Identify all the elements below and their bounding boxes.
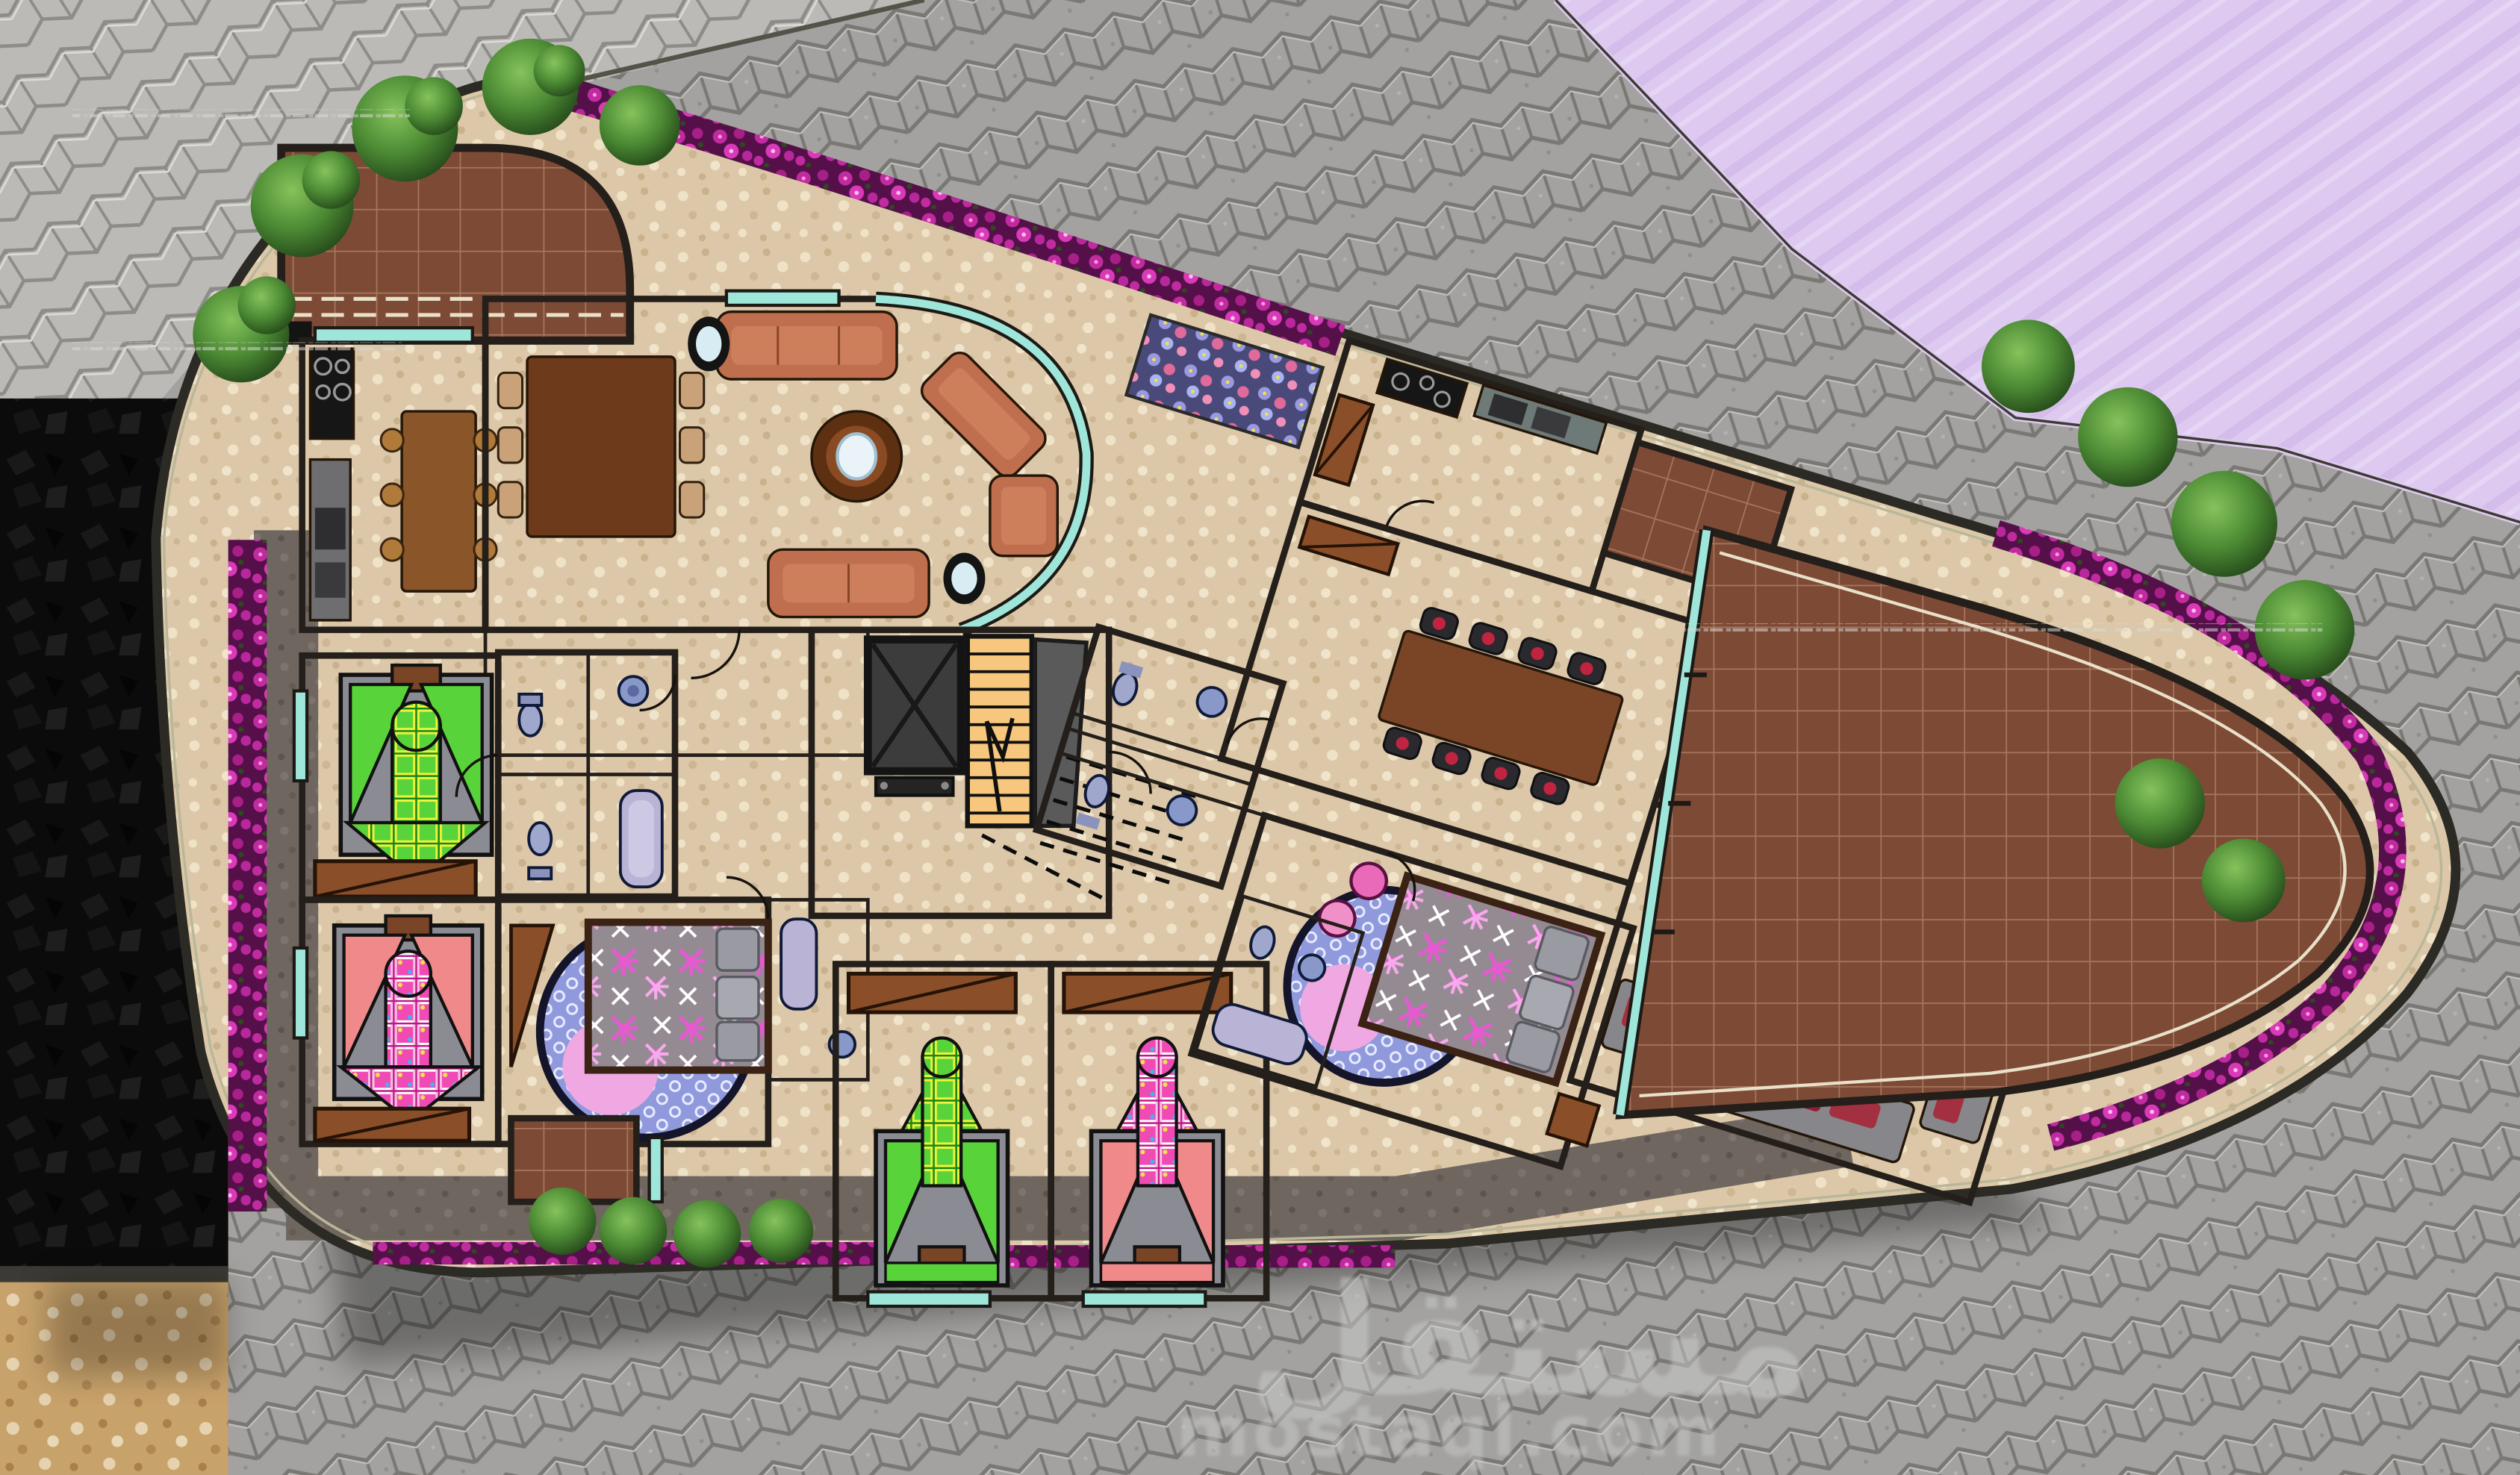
sofa-armchair <box>990 475 1057 556</box>
floor-plan-canvas: مستقل mostaql.com <box>0 0 2520 1475</box>
tree <box>2115 758 2206 849</box>
floor-plan-screenshot: مستقل mostaql.com <box>0 0 2520 1475</box>
living-window-top <box>727 291 839 305</box>
sofa-loveseat <box>768 549 929 617</box>
tree <box>2171 471 2277 577</box>
bathtub-2 <box>781 919 816 1009</box>
watermark-latin: mostaql.com <box>1176 1391 1723 1473</box>
bed-pink-single <box>335 916 482 1122</box>
watermark: مستقل mostaql.com <box>1176 1251 1812 1473</box>
bedroom1-window <box>294 691 307 782</box>
kitchen-sink-2 <box>315 562 346 597</box>
bedroom3-window <box>868 1292 990 1306</box>
elevator <box>868 640 961 796</box>
wardrobe-3 <box>848 973 1015 1012</box>
bedroom2-window <box>294 948 307 1038</box>
wardrobe-1 <box>315 861 476 896</box>
toilet-2 <box>529 823 551 879</box>
balcony-window <box>650 1138 662 1202</box>
dining-table-left <box>527 357 675 537</box>
bedroom4-window <box>1083 1292 1206 1306</box>
tree <box>1982 319 2075 413</box>
tree <box>600 85 680 166</box>
dining-set-left <box>498 357 704 537</box>
bed-green <box>340 665 491 880</box>
tree <box>2202 839 2286 923</box>
kitchen-sink <box>315 508 346 549</box>
sofa-3seat <box>717 312 897 379</box>
coffee-table-round <box>812 411 902 502</box>
sink-1 <box>619 676 648 705</box>
toilet-1 <box>519 694 541 736</box>
double-bed-left <box>588 923 768 1070</box>
side-table-oval-1 <box>688 316 729 371</box>
kitchen-window <box>315 328 473 342</box>
kitchen-table <box>402 411 476 591</box>
side-table-oval-2 <box>943 552 985 604</box>
bathtub-1 <box>620 790 662 887</box>
balcony-south-west <box>511 1118 662 1202</box>
tree <box>2078 387 2177 487</box>
